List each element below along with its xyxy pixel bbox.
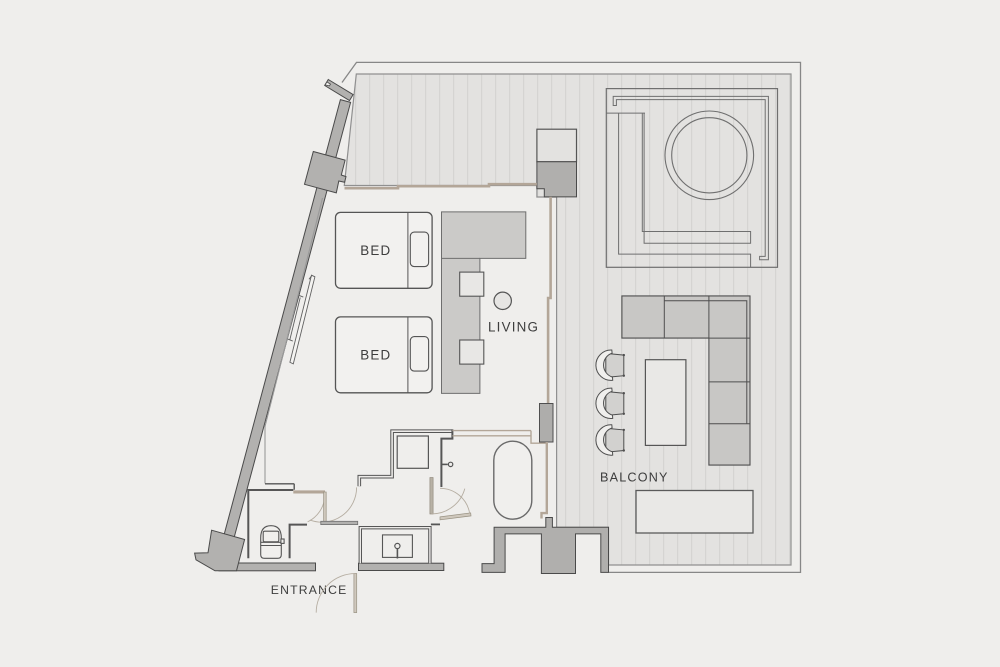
svg-text:BALCONY: BALCONY: [600, 471, 669, 485]
svg-text:ENTRANCE: ENTRANCE: [271, 583, 348, 597]
svg-text:BED: BED: [360, 347, 391, 362]
svg-text:BED: BED: [360, 243, 391, 258]
svg-text:LIVING: LIVING: [488, 319, 539, 334]
